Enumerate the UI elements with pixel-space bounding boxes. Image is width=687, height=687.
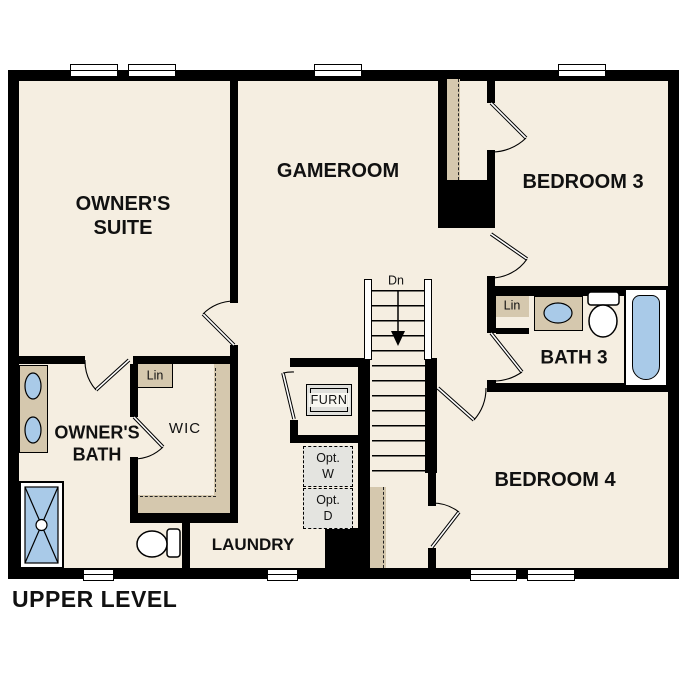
wall — [425, 358, 437, 473]
optional-dryer-label: Opt. D — [311, 493, 345, 524]
wic-shelving — [138, 495, 230, 513]
wall — [182, 523, 190, 568]
room-label-bedroom4: BEDROOM 4 — [494, 468, 615, 492]
label-furnace: FURN — [309, 393, 350, 407]
window — [527, 569, 575, 581]
optional-washer-label: Opt. W — [311, 451, 345, 482]
wall — [428, 548, 436, 568]
room-label-owners-suite: OWNER'S SUITE — [68, 192, 178, 240]
label-stairs-dn: Dn — [388, 274, 404, 289]
wall — [8, 70, 19, 579]
window — [128, 64, 176, 77]
wall — [487, 150, 495, 180]
bath3-vanity — [534, 296, 583, 331]
wall — [487, 276, 495, 286]
room-label-owners-bath: OWNER'S BATH — [47, 422, 147, 465]
label-linen-bath3: Lin — [504, 299, 521, 314]
wall-chase — [325, 528, 368, 568]
wall — [230, 81, 238, 303]
room-label-laundry: LAUNDRY — [212, 535, 294, 555]
wall — [19, 356, 85, 364]
optional-washer-box: Opt. W — [303, 446, 353, 487]
stair-rail — [364, 279, 372, 360]
room-label-bedroom3: BEDROOM 3 — [522, 170, 643, 194]
plan-title: UPPER LEVEL — [12, 586, 177, 613]
window — [558, 64, 606, 77]
wall — [487, 296, 496, 333]
wall — [496, 328, 529, 334]
room-label-bath3: BATH 3 — [540, 348, 607, 371]
label-linen-wic: Lin — [147, 369, 164, 384]
wall — [230, 364, 238, 513]
wall — [438, 70, 447, 180]
window — [470, 569, 517, 581]
wic-rod-dashed-line — [140, 496, 216, 497]
wall — [428, 473, 436, 506]
floor-plan: Opt. W Opt. D — [0, 0, 687, 687]
wall — [130, 513, 238, 523]
shower-surround — [19, 481, 64, 569]
room-label-wic: WIC — [169, 420, 201, 438]
window — [70, 64, 118, 77]
optional-dryer-box: Opt. D — [303, 488, 353, 529]
wall — [487, 70, 495, 103]
owners-bath-vanity — [19, 365, 48, 453]
window — [314, 64, 362, 77]
stair-chase-dashed-line — [458, 79, 459, 180]
wall — [668, 70, 679, 579]
room-label-gameroom: GAMEROOM — [277, 159, 399, 183]
wic-rod-dashed-line — [215, 368, 216, 492]
stair-rail — [424, 279, 432, 360]
window — [83, 569, 114, 581]
stair-landing-dashed-line — [383, 487, 384, 568]
bathtub — [632, 295, 660, 380]
window — [267, 569, 298, 581]
stair-treads — [372, 290, 425, 474]
wic-shelving — [214, 364, 230, 495]
wall-chase — [438, 180, 495, 228]
